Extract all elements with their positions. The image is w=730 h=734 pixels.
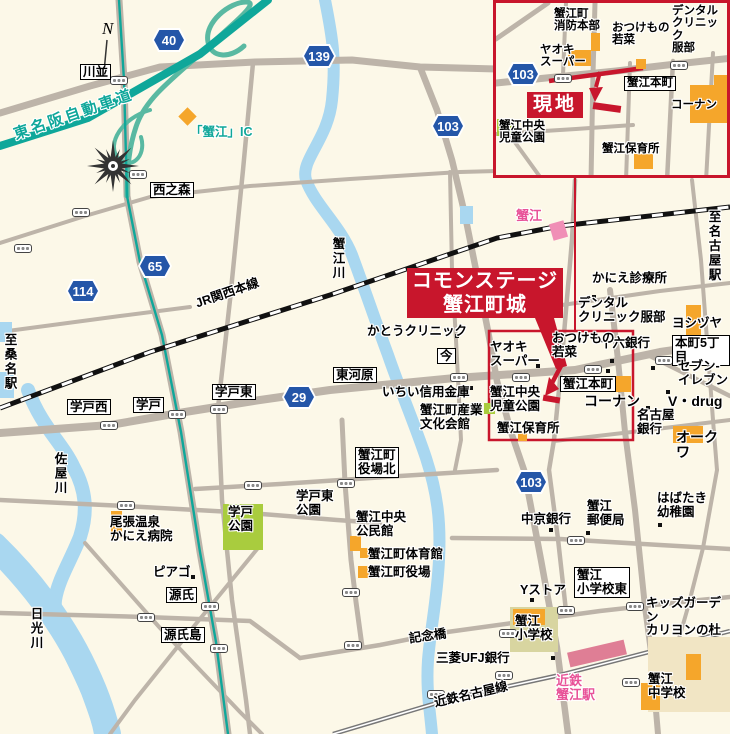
poi-dot: [551, 656, 555, 660]
traffic-signal-icon: [72, 208, 90, 217]
route-shield-65: 65: [138, 254, 172, 278]
route-shield-103-inset: 103: [506, 62, 540, 86]
route-shield-114: 114: [66, 279, 100, 303]
kato-clinic-label: かとうクリニック: [367, 325, 467, 339]
sangyo-hall-label: 蟹江町産業 文化会館: [420, 404, 483, 431]
site-location-label: 現地: [527, 92, 583, 118]
gakuto-higashi-park-label: 学戸東 公園: [296, 490, 334, 517]
higashikawara-label: 東河原: [333, 367, 377, 383]
sayagawa-river-label: 佐屋川: [52, 452, 66, 496]
yaoki-super-label: ヤオキ スーパー: [540, 44, 586, 69]
traffic-signal-icon: [670, 61, 688, 70]
traffic-signal-icon: [14, 244, 32, 253]
vdrug-label: V・drug: [668, 394, 722, 409]
traffic-signal-icon: [554, 74, 572, 83]
site-banner: コモンステージ 蟹江町城: [407, 268, 563, 318]
traffic-signal-icon: [557, 606, 575, 615]
compass-star-icon: [87, 140, 139, 192]
fire-hq-building: [591, 33, 600, 51]
traffic-signal-icon: [244, 481, 262, 490]
route-shield-29: 29: [282, 385, 316, 409]
route-shield-139: 139: [302, 44, 336, 68]
chukyo-bank-label: 中京銀行: [521, 513, 571, 527]
traffic-signal-icon: [655, 356, 673, 365]
pond: [460, 206, 473, 224]
traffic-signal-icon: [168, 410, 186, 419]
route-shield-40: 40: [152, 28, 186, 52]
nishinomori-label: 西之森: [150, 182, 194, 198]
kanie-town-access-map: N: [0, 0, 730, 734]
poi-dot: [606, 369, 610, 373]
traffic-signal-icon: [117, 501, 135, 510]
yakuba-kita-label: 蟹江町 役場北: [355, 447, 399, 478]
poi-dot: [549, 528, 553, 532]
traffic-signal-icon: [201, 602, 219, 611]
traffic-signal-icon: [584, 365, 602, 374]
nursery-label: 蟹江保育所: [497, 422, 560, 436]
poi-dot: [610, 359, 614, 363]
traffic-signal-icon: [344, 641, 362, 650]
wakana-label: おつけもの 若菜: [552, 332, 615, 359]
children-park-label: 蟹江中央 児童公園: [490, 386, 540, 413]
genji-label: 源氏: [166, 587, 197, 603]
yaoki-super-label: ヤオキ スーパー: [490, 341, 540, 368]
kanie-clinic-label: かにえ診療所: [592, 272, 667, 286]
town-hall-label: 蟹江町役場: [368, 566, 431, 580]
genjijima-label: 源氏島: [161, 627, 205, 643]
to-nagoya-label: 至名古屋駅: [706, 210, 720, 283]
children-park-label: 蟹江中央 児童公園: [499, 120, 545, 145]
inset-detail-map: 103 蟹江町 消防本部 おつけもの 若菜 デンタル クリニック 服部 ヤオキ …: [493, 0, 730, 178]
traffic-signal-icon: [210, 644, 228, 653]
nikkogawa-river: [0, 545, 108, 734]
route-shield-103-south: 103: [514, 470, 548, 494]
jr-kanie-station-label: 蟹江: [516, 209, 542, 223]
fire-hq-label: 蟹江町 消防本部: [554, 8, 600, 33]
yoshizuya-label: ヨシヅヤ: [672, 317, 722, 331]
kominkan-label: 蟹江中央 公民館: [356, 511, 406, 538]
to-kuwana-label: 至桑名駅: [2, 333, 16, 391]
poi-dot: [658, 523, 662, 527]
post-office-label: 蟹江 郵便局: [587, 500, 625, 527]
traffic-signal-icon: [137, 613, 155, 622]
traffic-signal-icon: [337, 479, 355, 488]
traffic-signal-icon: [450, 373, 468, 382]
gakuto-nishi-label: 学戸西: [67, 399, 111, 415]
kanie-honmachi-label: 蟹江本町: [624, 76, 676, 91]
nursery-building: [634, 154, 653, 169]
kaniegawa-river-label: 蟹江川: [330, 237, 344, 281]
traffic-signal-icon: [567, 536, 585, 545]
traffic-signal-icon: [210, 405, 228, 414]
traffic-signal-icon: [626, 602, 644, 611]
gakuto-label: 学戸: [133, 397, 164, 413]
kawanami-label: 川並: [80, 64, 111, 80]
kanie-ic-label: 「蟹江」IC: [190, 126, 253, 140]
kohnan-label: コーナン: [671, 99, 717, 111]
habataki-label: はばたき 幼稚園: [657, 492, 707, 519]
kohnan-building: [615, 376, 631, 392]
y-store-label: Yストア: [520, 584, 566, 598]
poi-dot: [586, 531, 590, 535]
kanie-honmachi-label: 蟹江本町: [560, 376, 616, 392]
seven-eleven-label: セブン- イレブン: [678, 360, 728, 387]
kintetsu-station-label: 近鉄 蟹江駅: [556, 674, 595, 702]
wakana-label: おつけもの 若菜: [612, 22, 670, 47]
kanie-ic-icon: [178, 107, 196, 125]
poi-dot: [191, 575, 195, 579]
traffic-signal-icon: [512, 373, 530, 382]
gym-label: 蟹江町体育館: [368, 548, 443, 562]
ima-label: 今: [437, 348, 456, 364]
poi-dot: [530, 598, 534, 602]
route-shield-103: 103: [431, 114, 465, 138]
junior-high-building: [686, 654, 701, 680]
nursery-label: 蟹江保育所: [602, 143, 660, 155]
wakana-building: [636, 59, 646, 69]
gakuto-higashi-label: 学戸東: [212, 384, 256, 400]
nagoya-bank-label: 名古屋 銀行: [637, 409, 675, 436]
shogakko-higashi-label: 蟹江 小学校東: [574, 567, 630, 598]
nikkogawa-river-label: 日光川: [28, 607, 42, 651]
dental-clinic-label: デンタル クリニック服部: [578, 297, 666, 324]
traffic-signal-icon: [100, 421, 118, 430]
kohnan-label: コーナン: [584, 394, 640, 409]
chugakko-label: 蟹江 中学校: [648, 673, 686, 700]
traffic-signal-icon: [342, 588, 360, 597]
ichii-bank-label: いちい信用金庫: [382, 386, 470, 400]
piago-label: ピアゴ: [153, 566, 191, 580]
shogakko-label: 蟹江 小学校: [515, 615, 553, 642]
gakuto-park-label: 学戸 公園: [228, 506, 253, 533]
kids-garden-label: キッズガーデン カリヨンの杜: [646, 597, 730, 638]
okuwa-label: オークワ: [676, 430, 730, 460]
mufg-label: 三菱UFJ銀行: [436, 652, 510, 666]
traffic-signal-icon: [622, 678, 640, 687]
poi-dot: [651, 366, 655, 370]
compass-n-glyph: N: [101, 19, 115, 38]
dental-clinic-label: デンタル クリニック 服部: [672, 5, 727, 55]
onsen-hospital-label: 尾張温泉 かにえ病院: [110, 516, 173, 543]
